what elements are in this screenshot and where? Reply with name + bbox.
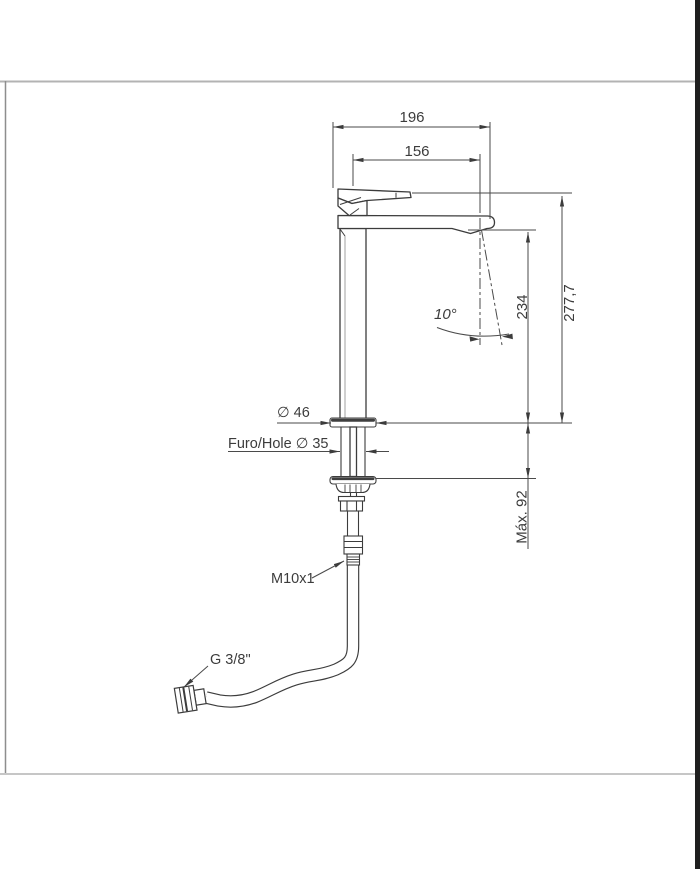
dim-234-label: 234	[514, 294, 531, 319]
dim-156-label: 156	[404, 143, 429, 160]
nut-lip	[339, 497, 365, 502]
dim-196-label: 196	[399, 109, 424, 126]
union-nut	[344, 536, 363, 554]
hose-fitting	[174, 684, 207, 713]
technical-drawing: 196 156 277,7 234 Máx. 92 10° ∅ 46 Furo/…	[0, 0, 700, 869]
angle-label: 10°	[434, 306, 457, 323]
faucet-column	[340, 229, 366, 420]
dim-277-label: 277,7	[561, 284, 578, 322]
washer-top-band	[332, 477, 375, 480]
hole-35-label: Furo/Hole ∅ 35	[228, 436, 328, 452]
arc-arrow	[470, 336, 480, 341]
dimension-lines	[184, 127, 562, 687]
mounting-nut	[341, 501, 363, 511]
tilted-centerline	[482, 230, 503, 345]
thread-m10-label: M10x1	[271, 571, 315, 587]
g38-leader	[184, 666, 208, 687]
faucet-body	[338, 189, 495, 420]
diameter-46-label: ∅ 46	[277, 405, 310, 421]
mounting-stack	[330, 418, 376, 565]
supply-stud	[350, 427, 357, 477]
drawing-page: 196 156 277,7 234 Máx. 92 10° ∅ 46 Furo/…	[0, 0, 700, 869]
right-edge-bar	[695, 0, 700, 869]
angle-arc	[437, 328, 509, 337]
supply-g38-label: G 3/8"	[210, 652, 251, 668]
flange-top-band	[331, 419, 375, 422]
washer-skirt	[336, 484, 370, 493]
m10-leader	[312, 561, 344, 578]
swivel-angle-annotation	[437, 218, 513, 345]
dim-max92-label: Máx. 92	[514, 490, 531, 543]
